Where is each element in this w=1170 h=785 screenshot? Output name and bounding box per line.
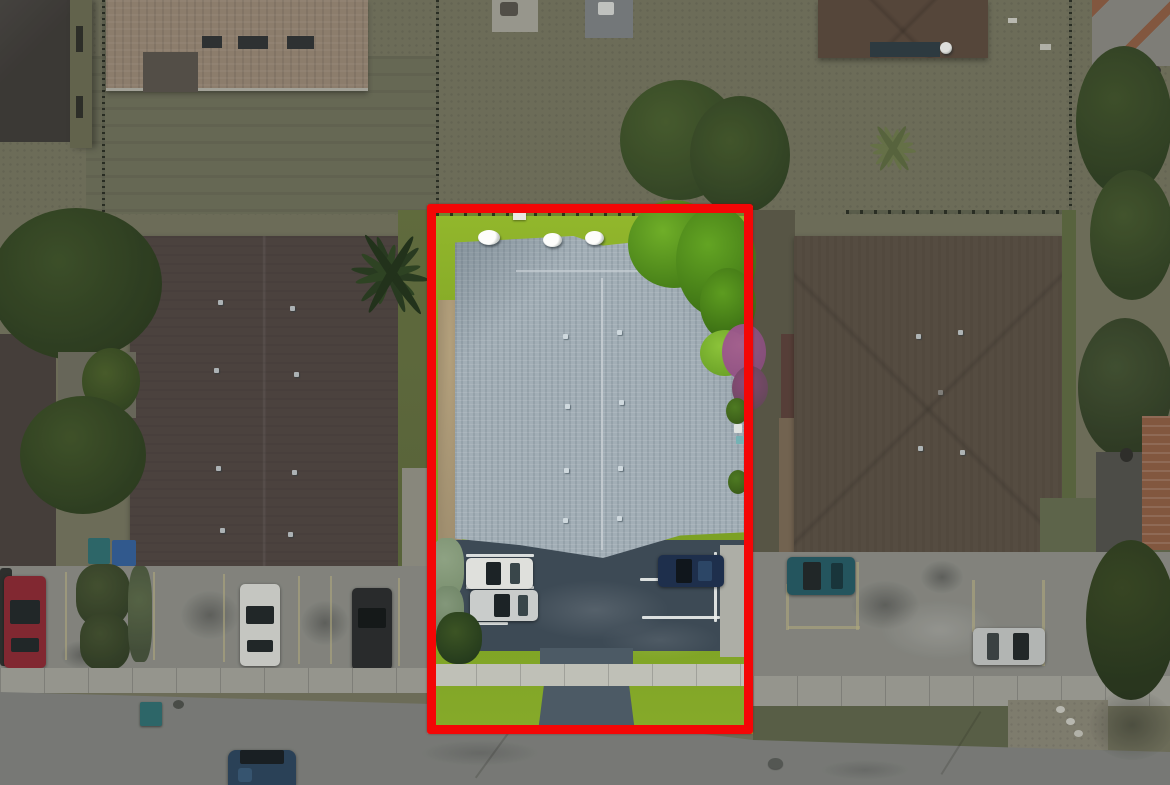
ac-unit: [598, 2, 614, 15]
dumpster: [140, 702, 162, 726]
tan-house-notch: [143, 52, 198, 92]
stepping-stone: [1074, 730, 1083, 737]
palm-tree-top: [859, 111, 927, 186]
stepping-stone: [1066, 718, 1075, 725]
rear-tree-cluster-outer: [690, 96, 790, 214]
trash-speck: [1040, 44, 1051, 50]
stepping-stone: [1056, 706, 1065, 713]
top-left-house-window: [76, 96, 83, 118]
walkway-west: [402, 468, 428, 572]
aerial-photo: [0, 0, 1170, 785]
red-car: [4, 576, 46, 668]
top-left-house-window: [76, 26, 83, 52]
trash-bins-left: [88, 538, 110, 564]
concrete-pad-stain: [500, 2, 518, 16]
teal-car: [787, 557, 855, 595]
trash-speck: [1008, 18, 1017, 23]
right-edge-trees: [1090, 170, 1170, 300]
blue-car-street: [228, 750, 296, 785]
fence-left: [102, 0, 105, 212]
sidewalk-left: [0, 668, 432, 693]
parking-hedge-scraggly: [128, 566, 152, 662]
black-car: [352, 588, 392, 670]
parking-hedge: [80, 614, 130, 670]
right-apartment-roof: [794, 236, 1062, 578]
bottom-right-terracotta-roof: [1142, 416, 1170, 550]
bottom-right-street-trees: [1086, 540, 1170, 700]
top-left-house-wall: [70, 0, 92, 148]
skylight-panel: [287, 36, 314, 49]
fence-rear-right: [846, 210, 1070, 214]
fence-mid: [436, 0, 439, 206]
street-mark: [173, 700, 184, 709]
silver-car-right-lot: [973, 628, 1045, 665]
manhole: [768, 758, 783, 769]
satellite-dish: [940, 42, 952, 54]
palm-tree-left-boundary: [326, 200, 438, 348]
lanai-pool: [870, 42, 940, 57]
tree-shadow-on-street: [1090, 690, 1170, 760]
grill: [1120, 448, 1133, 462]
top-left-house-roof: [0, 0, 74, 142]
white-car-left-lot: [240, 584, 280, 666]
skylight-panel: [238, 36, 268, 49]
property-boundary: [427, 204, 753, 734]
left-tree-lower: [20, 396, 146, 514]
skylight-panel: [202, 36, 222, 48]
trash-bins-left: [112, 540, 136, 566]
